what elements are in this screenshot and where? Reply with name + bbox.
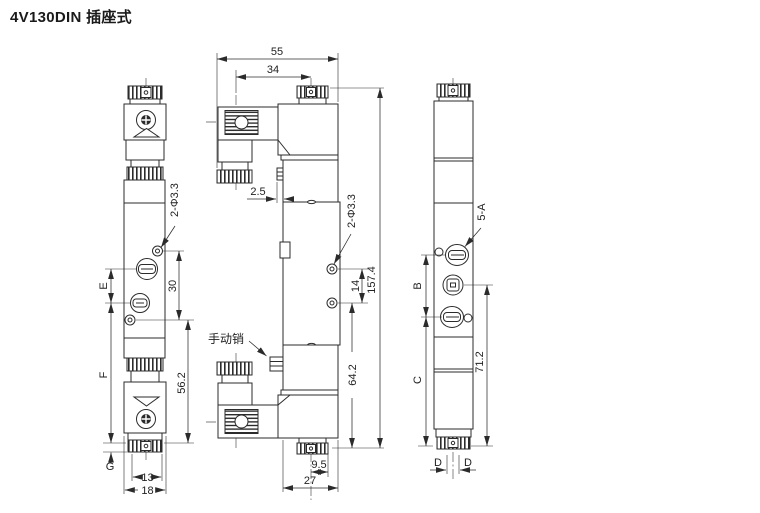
end-view: 5-A B C 71.2 D D [412,78,493,480]
dim-g-label: G [106,461,115,473]
front-holes-label: 2-Φ3.3 [169,183,181,217]
override-tab-top [277,168,283,180]
dim-157-label: 157.4 [366,266,378,294]
coil-nut-knurl [127,358,163,371]
mounting-hole-bottom [125,315,135,325]
front-bottom-solenoid [124,358,166,452]
manual-pin-tab [270,357,283,371]
dim-e-label: E [98,282,110,289]
din-connector-screw [235,415,248,428]
end-body [434,84,473,449]
mounting-hole-bottom [327,298,337,308]
valve-technical-drawing: E F G 30 56.2 13 18 2-Φ3.3 [0,0,760,513]
dim-c-label: C [412,376,424,384]
side-holes-label: 2-Φ3.3 [346,194,358,228]
dim-71-label: 71.2 [474,351,486,372]
coil-nut-knurl [127,167,163,180]
side-valve-body [270,160,340,390]
mounting-hole-top [327,264,337,274]
manual-pin-label: 手动销 [208,332,244,346]
dim-f-label: F [98,371,110,378]
dim-2-5-label: 2.5 [250,186,265,198]
solenoid-block [278,395,338,438]
dim-55-label: 55 [271,46,283,58]
dim-18-label: 18 [141,485,153,497]
dim-9-5-label: 9.5 [311,459,326,471]
dim-27-label: 27 [304,475,316,487]
din-cap-knurl [217,362,252,375]
dim-d-right-label: D [464,457,472,469]
port-5a-label: 5-A [476,203,488,221]
dim-64-label: 64.2 [347,364,359,385]
dim-56-label: 56.2 [176,372,188,393]
dim-d-left-label: D [434,457,442,469]
solenoid-block [278,104,338,155]
front-top-solenoid [124,86,166,180]
din-cap-knurl [217,170,252,183]
dim-b-label: B [412,282,424,289]
dim-30-label: 30 [167,280,179,292]
din-connector-screw [235,116,248,129]
front-view: E F G 30 56.2 13 18 2-Φ3.3 [98,78,194,497]
dim-34-label: 34 [267,64,279,76]
side-lug [280,242,290,258]
drawing-page: 4V130DIN 插座式 [0,0,760,513]
dim-13-label: 13 [141,472,153,484]
pilot-hole-bottom [464,314,472,322]
dim-14-label: 14 [350,280,362,292]
side-view: 55 34 2.5 2-Φ3.3 14 64.2 157.4 9.5 27 手动… [206,46,384,500]
